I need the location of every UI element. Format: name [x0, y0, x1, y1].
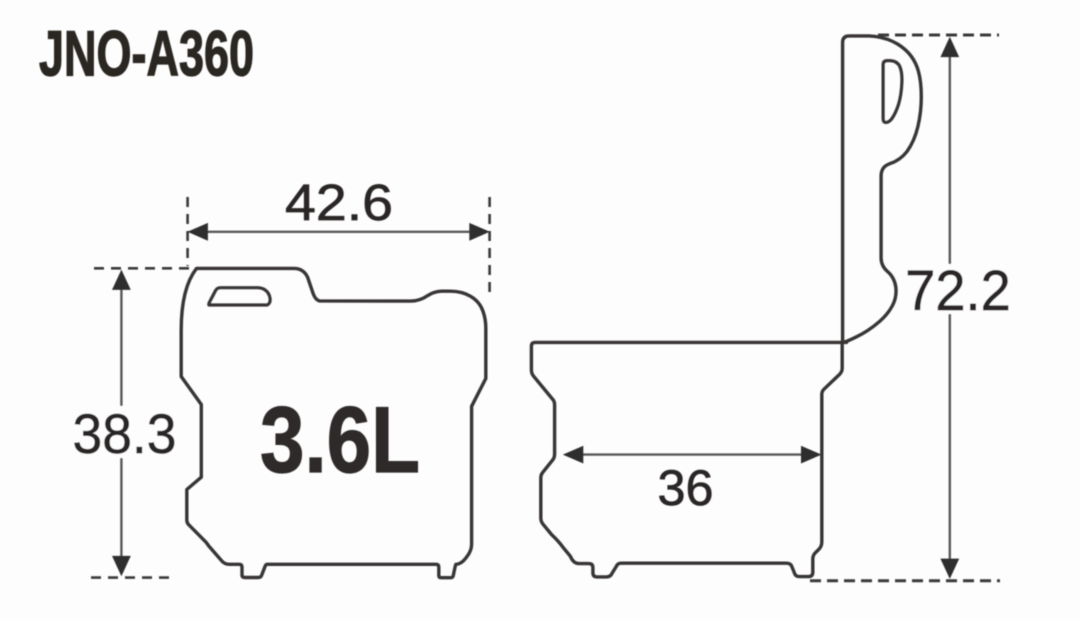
svg-text:42.6: 42.6 — [285, 174, 393, 231]
svg-text:36: 36 — [658, 459, 714, 516]
svg-text:3.6L: 3.6L — [260, 387, 420, 492]
svg-text:JNO-A360: JNO-A360 — [39, 18, 254, 90]
svg-text:38.3: 38.3 — [73, 402, 177, 465]
svg-text:72.2: 72.2 — [905, 259, 1011, 323]
